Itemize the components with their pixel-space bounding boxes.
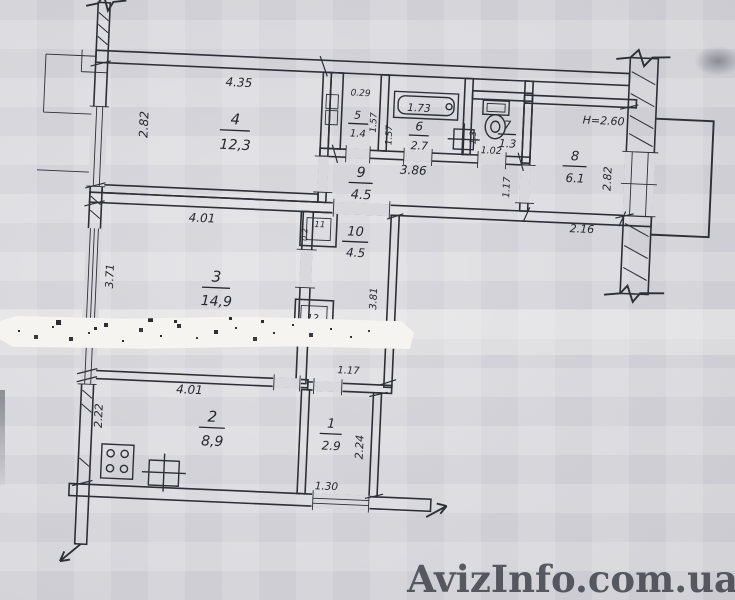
window-openings xyxy=(73,106,660,524)
room-label-1: 1 2.9 xyxy=(319,416,343,453)
room-label-9: 9 4.5 xyxy=(348,164,374,203)
room-number: 4 xyxy=(230,110,240,128)
room-label-6: 6 2.7 xyxy=(408,119,429,153)
arrow-end-icon xyxy=(60,543,81,562)
room-number: 9 xyxy=(356,165,366,181)
exterior-walls xyxy=(67,2,660,568)
dim-room5-depth: 1.57 xyxy=(369,112,380,133)
room-area: 6.1 xyxy=(565,171,585,186)
room-label-4: 4 12,3 xyxy=(219,110,252,154)
dim-room8-door: 1.17 xyxy=(501,177,513,199)
balcony-outline xyxy=(651,119,714,237)
room-area: 2.9 xyxy=(321,438,341,453)
room-number: 8 xyxy=(571,149,580,164)
room-area: 1.4 xyxy=(350,128,366,140)
dim-room3-left: 3.71 xyxy=(103,264,117,289)
room-number: 10 xyxy=(347,224,364,240)
dim-room2-width: 4.01 xyxy=(176,382,203,397)
room-number: 3 xyxy=(211,268,221,286)
dim-bathtub: 1.73 xyxy=(407,102,431,115)
room-label-10: 10 4.5 xyxy=(341,224,369,260)
room-area: 12,3 xyxy=(219,137,251,154)
scanned-floor-plan-page: 4 12,3 5 1.4 6 2.7 7 1.3 8 xyxy=(0,0,735,600)
dim-room8-right: 2.82 xyxy=(601,166,615,191)
dim-room8-bottom: 2.16 xyxy=(569,222,594,236)
stove-icon xyxy=(101,444,134,479)
dim-room4-left: 2.82 xyxy=(136,111,151,138)
dim-corridor-depth: 3.81 xyxy=(368,287,380,310)
room-number: 2 xyxy=(207,407,217,425)
room-label-3: 3 14,9 xyxy=(200,267,233,310)
dim-room7-left: 1.3 xyxy=(468,131,479,145)
room-number: 11 xyxy=(314,220,325,230)
room-label-8: 8 6.1 xyxy=(562,149,588,186)
room-label-5: 5 1.4 xyxy=(348,108,369,140)
torn-crease xyxy=(0,316,414,349)
room-area: 4.5 xyxy=(346,245,366,260)
room-area: 2.7 xyxy=(410,139,428,153)
watermark: AvizInfo.com.ua xyxy=(407,557,735,600)
ceiling-height-note: H=2.60 xyxy=(582,114,625,129)
dim-room4-width: 4.35 xyxy=(225,75,252,90)
room-number: 5 xyxy=(354,109,362,122)
dim-room2-left: 2.22 xyxy=(92,403,106,428)
dim-room3-width: 4.01 xyxy=(188,210,215,225)
door-openings xyxy=(272,143,536,404)
dim-passage-width: 1.17 xyxy=(337,365,360,377)
room-area: 14,9 xyxy=(200,293,232,310)
room-number: 7 xyxy=(503,118,512,132)
room-area: 0.2 xyxy=(300,228,310,241)
floor-plan-drawing: 4 12,3 5 1.4 6 2.7 7 1.3 8 xyxy=(0,0,735,600)
room-number: 6 xyxy=(415,119,424,133)
dim-hall-width: 3.86 xyxy=(400,163,428,178)
break-icon xyxy=(86,0,127,12)
interior-walls xyxy=(77,62,657,508)
dim-room6-depth: 1.57 xyxy=(384,125,395,146)
dim-room7-width: 1.02 xyxy=(480,145,502,157)
dim-room1-bottom: 1.30 xyxy=(314,480,338,493)
room-area: 4.5 xyxy=(350,188,371,204)
dim-duct: 0.29 xyxy=(350,88,371,99)
room-label-2: 2 8,9 xyxy=(198,407,226,450)
room-number: 1 xyxy=(327,417,336,432)
room-area: 8,9 xyxy=(201,433,224,450)
wall-hatching xyxy=(79,12,657,490)
dim-room1-right: 2.24 xyxy=(353,435,367,460)
